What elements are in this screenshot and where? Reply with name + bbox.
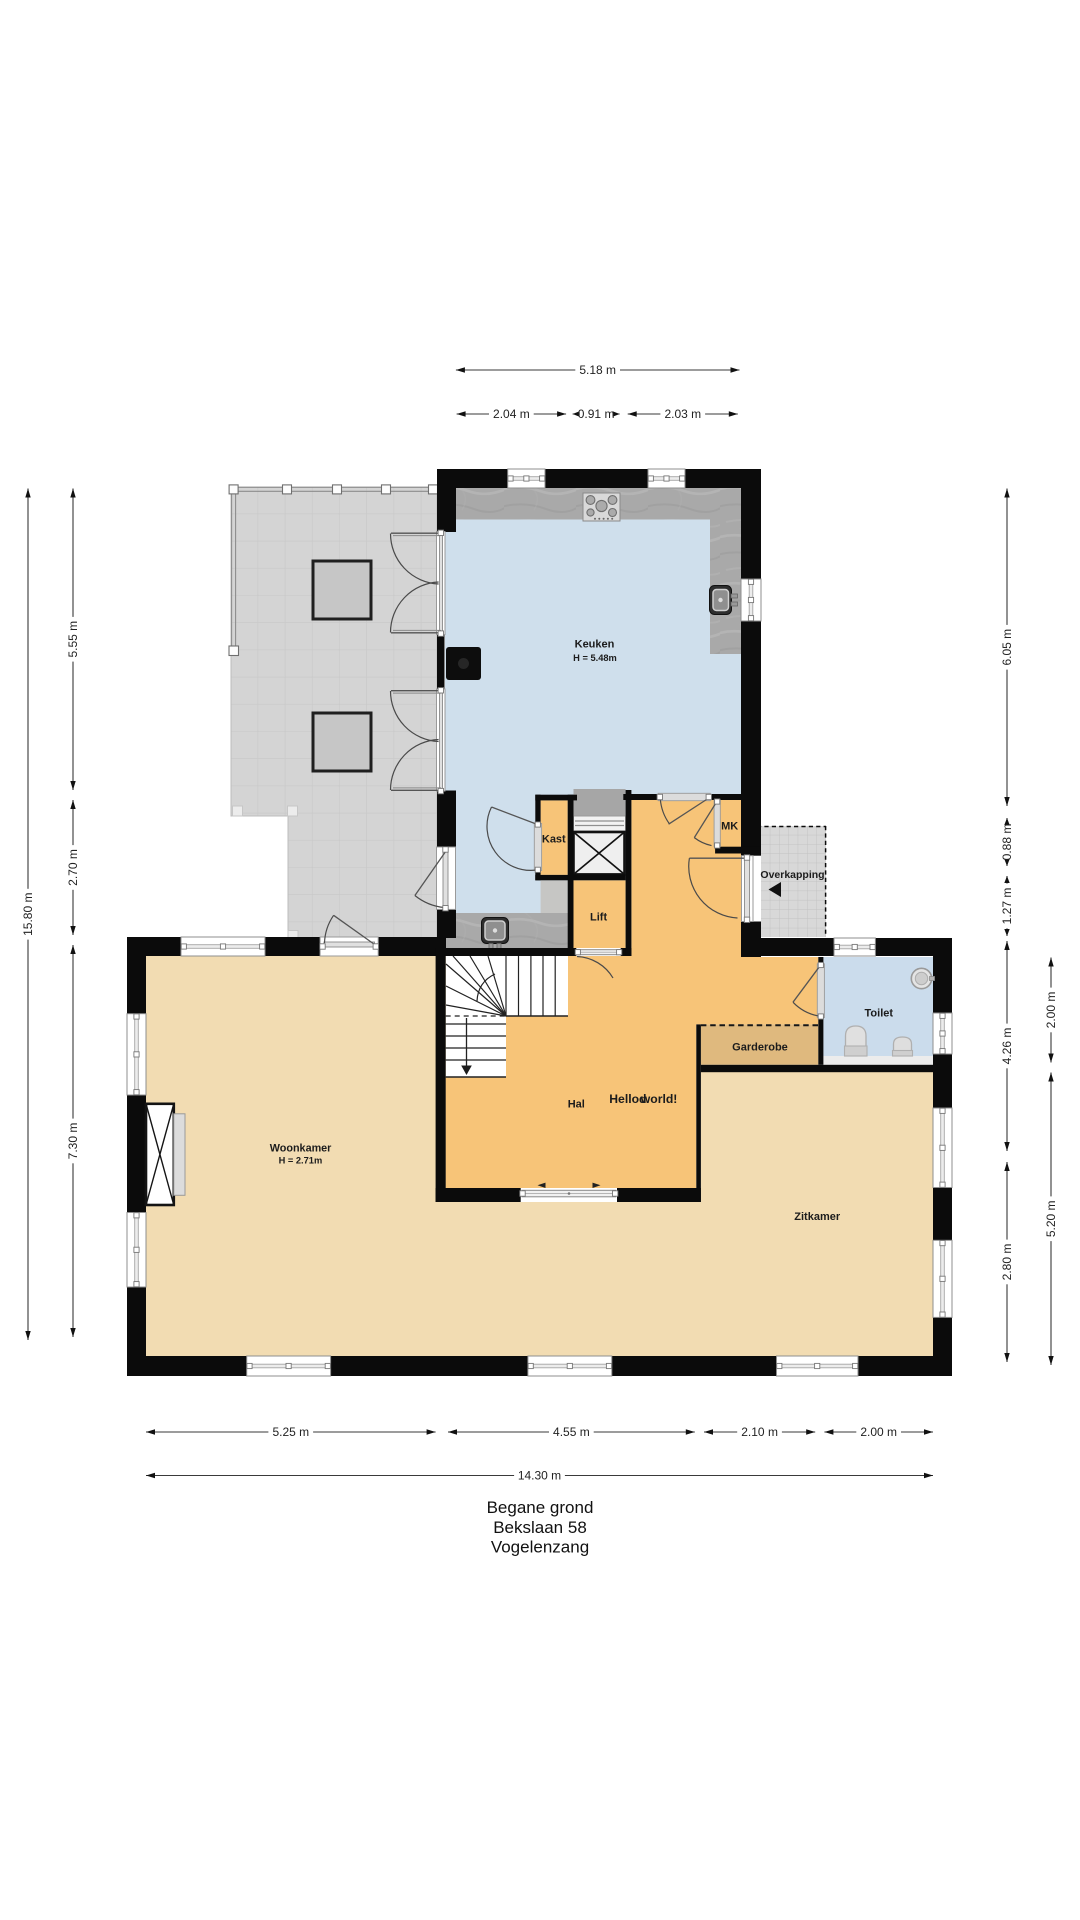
- svg-text:Overkapping: Overkapping: [760, 869, 824, 881]
- svg-text:15.80 m: 15.80 m: [21, 893, 35, 936]
- svg-text:2.00 m: 2.00 m: [1044, 992, 1058, 1029]
- svg-text:Bekslaan 58: Bekslaan 58: [493, 1518, 587, 1537]
- svg-text:Hal: Hal: [568, 1098, 585, 1110]
- svg-text:1.27 m: 1.27 m: [1000, 888, 1014, 925]
- svg-text:4.55 m: 4.55 m: [553, 1425, 590, 1439]
- svg-text:5.25 m: 5.25 m: [272, 1425, 309, 1439]
- svg-text:Begane grond: Begane grond: [487, 1498, 594, 1517]
- svg-text:14.30 m: 14.30 m: [518, 1469, 561, 1483]
- svg-text:7.30 m: 7.30 m: [66, 1123, 80, 1160]
- svg-text:Vogelenzang: Vogelenzang: [491, 1537, 589, 1556]
- svg-text:0.91 m: 0.91 m: [578, 407, 615, 421]
- svg-text:5.55 m: 5.55 m: [66, 621, 80, 658]
- svg-text:2.80 m: 2.80 m: [1000, 1244, 1014, 1281]
- svg-text:5.18 m: 5.18 m: [579, 363, 616, 377]
- svg-text:2.03 m: 2.03 m: [664, 407, 701, 421]
- svg-text:4.26 m: 4.26 m: [1000, 1028, 1014, 1065]
- svg-text:Keuken: Keuken: [575, 638, 615, 650]
- svg-text:H = 2.71m: H = 2.71m: [279, 1156, 323, 1166]
- svg-text:Toilet: Toilet: [865, 1007, 894, 1019]
- svg-text:2.10 m: 2.10 m: [741, 1425, 778, 1439]
- svg-text:2.70 m: 2.70 m: [66, 849, 80, 886]
- svg-text:Kast: Kast: [542, 834, 566, 846]
- svg-text:6.05 m: 6.05 m: [1000, 629, 1014, 666]
- svg-text:MK: MK: [721, 821, 738, 833]
- svg-text:Lift: Lift: [590, 912, 607, 924]
- svg-text:2.00 m: 2.00 m: [860, 1425, 897, 1439]
- svg-text:Zitkamer: Zitkamer: [794, 1211, 841, 1223]
- svg-text:Woonkamer: Woonkamer: [270, 1143, 332, 1155]
- svg-text:5.20 m: 5.20 m: [1044, 1200, 1058, 1237]
- svg-text:Garderobe: Garderobe: [732, 1041, 788, 1053]
- svg-text:world!: world!: [640, 1092, 678, 1106]
- svg-text:2.04 m: 2.04 m: [493, 407, 530, 421]
- svg-text:H = 5.48m: H = 5.48m: [573, 653, 617, 663]
- svg-text:0.88 m: 0.88 m: [1000, 824, 1014, 861]
